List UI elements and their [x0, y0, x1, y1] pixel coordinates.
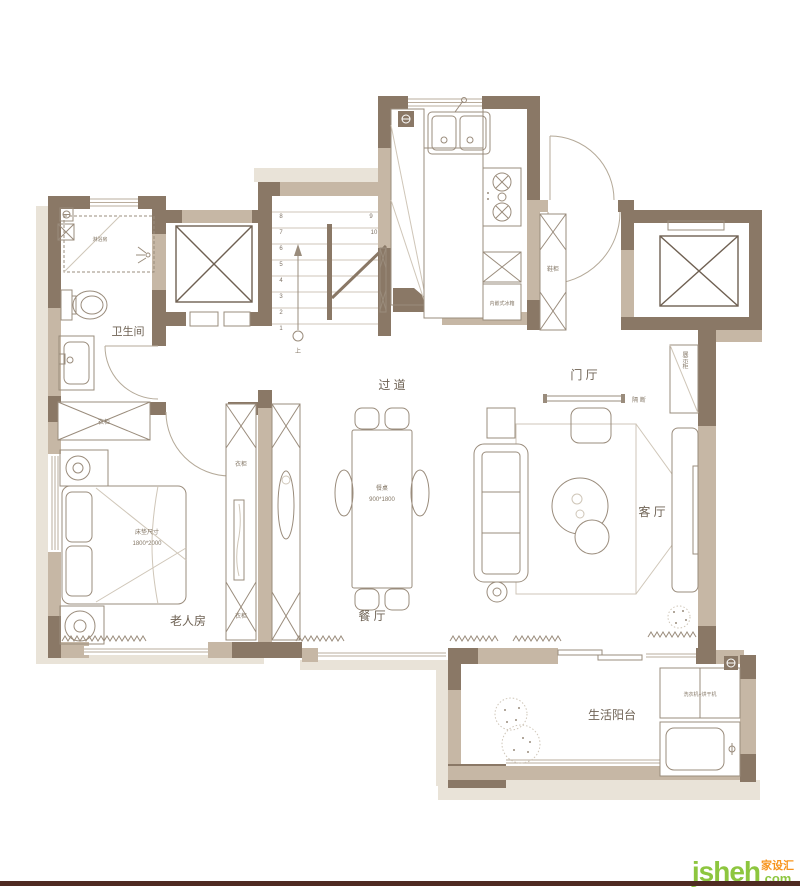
footer-bar	[0, 881, 800, 886]
dining-table-size: 900*1800	[369, 497, 395, 503]
floor-plan: 淋浴房 卫生间 8 7 6	[0, 0, 800, 888]
floor-lamp	[487, 582, 507, 602]
dining-table-label: 餐桌	[376, 484, 388, 492]
washer-dryer-label: 洗衣机+烘干机	[684, 691, 717, 698]
stair-number: 5	[279, 262, 283, 268]
chair	[355, 408, 379, 429]
chair	[355, 589, 379, 610]
staircase: 8 7 6 5 4 3 2 1 9 10 上	[272, 212, 386, 355]
entry-foyer: 鞋柜 隔 断 展示柜 门 厅	[540, 136, 698, 413]
partition-label: 隔 断	[632, 396, 646, 404]
stair-number: 9	[369, 214, 373, 220]
chair	[411, 470, 429, 516]
wardrobe-column	[226, 404, 256, 640]
stair-number: 7	[279, 230, 283, 236]
site-logo: jsheh 家设汇 .com	[646, 845, 794, 885]
display-cabinet-label: 展示柜	[681, 351, 688, 370]
plant	[668, 606, 690, 628]
stair-number: 6	[279, 246, 283, 252]
mattress-label: 床垫尺寸	[135, 528, 159, 536]
plant	[495, 698, 527, 730]
room-label-living: 客 厅	[638, 504, 665, 519]
elevator-2	[660, 221, 738, 306]
dining-area: 餐桌 900*1800 餐 厅 过 道	[335, 378, 429, 623]
partition	[545, 396, 623, 401]
shower-label: 淋浴房	[92, 236, 107, 243]
mattress-size: 1800*2000	[132, 541, 162, 547]
chair	[385, 589, 409, 610]
stair-number: 4	[279, 278, 283, 284]
room-label-foyer: 门 厅	[570, 367, 597, 382]
laundry-sink	[660, 722, 740, 776]
toilet	[61, 290, 72, 320]
elder-bedroom: 衣柜 床垫尺寸 1800*2000 老人房 衣柜 衣柜	[58, 402, 256, 644]
chair	[335, 470, 353, 516]
nightstand	[60, 450, 108, 486]
room-label-dining: 餐 厅	[358, 608, 385, 623]
dining-table	[352, 430, 412, 588]
tv	[693, 466, 698, 554]
stair-number: 10	[371, 230, 378, 236]
ottoman	[571, 408, 611, 443]
stairs-up-label: 上	[295, 347, 301, 355]
side-table	[487, 408, 515, 438]
radiators	[62, 632, 696, 641]
wardrobe-label: 衣柜	[98, 418, 110, 426]
stair-number: 8	[279, 214, 283, 220]
elevator-1	[176, 226, 252, 326]
bathroom: 淋浴房 卫生间	[58, 208, 166, 400]
stove	[483, 168, 521, 226]
room-label-bedroom: 老人房	[170, 613, 206, 628]
shoe-cabinet-label: 鞋柜	[547, 265, 559, 273]
stair-number: 2	[279, 310, 283, 316]
stair-number: 3	[279, 294, 283, 300]
stair-number: 1	[279, 326, 283, 332]
room-label-balcony: 生活阳台	[588, 707, 636, 722]
living-room: 客 厅	[474, 408, 698, 628]
room-label-bathroom: 卫生间	[112, 324, 145, 338]
fridge-label: 内嵌式冰箱	[489, 300, 514, 307]
chair	[385, 408, 409, 429]
wardrobe-label: 衣柜	[235, 612, 247, 620]
kitchen-island	[424, 148, 483, 318]
corridor-cabinet	[272, 404, 300, 640]
kitchen: 内嵌式冰箱	[391, 98, 521, 321]
room-label-corridor: 过 道	[378, 378, 405, 392]
wardrobe-label: 衣柜	[235, 460, 247, 468]
